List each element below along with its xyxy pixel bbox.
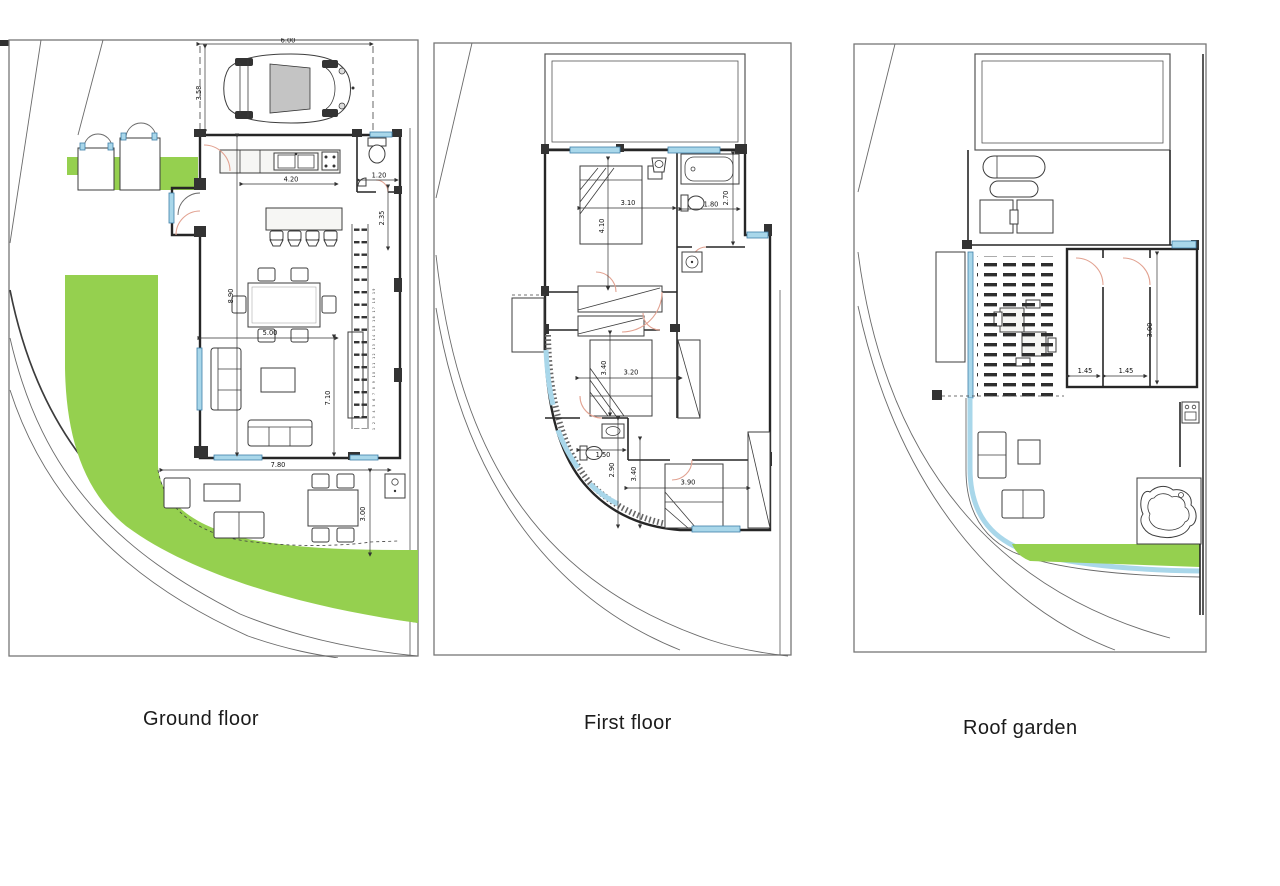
dim-living-width: 5.00: [263, 329, 278, 337]
floor-plan-roof: 1.45 1.45 3.00: [850, 40, 1215, 655]
dim-carport-width: 6.00: [281, 38, 296, 45]
wc-ground: [358, 138, 388, 192]
laundry: [682, 252, 702, 272]
roof-sofa: [978, 432, 1006, 478]
outdoor-sink-icon: [385, 474, 405, 498]
living-room: [211, 332, 363, 446]
roof-sofa-2: [1002, 490, 1044, 518]
dim-store2-width: 1.45: [1119, 367, 1134, 375]
roof-table: [1017, 200, 1053, 233]
dim-bed2-width: 3.20: [624, 369, 639, 377]
dim-terrace-width: 7.80: [271, 461, 286, 469]
store-rooms: 1.45 1.45 3.00: [1067, 241, 1197, 387]
sofa-2: [248, 420, 312, 446]
bathtub-icon: [681, 154, 739, 184]
side-table: [1018, 440, 1040, 464]
void-over-carport: [545, 54, 745, 149]
staircase-ground: 1 2 3 4 5 6 7 8 9 10 11 12 13 14 15 16 1…: [352, 224, 376, 430]
stove-icon: [322, 152, 338, 170]
dim-kitchen-width: 4.20: [284, 176, 299, 184]
corner-basin-icon: [358, 178, 366, 186]
bed-icon: [665, 464, 723, 528]
dim-east-depth: 7.10: [324, 391, 332, 406]
dining-table: [232, 268, 336, 342]
stairwell-first: [578, 286, 662, 336]
dim-bed3-depth: 3.40: [630, 467, 638, 482]
outdoor-armchair: [164, 478, 190, 508]
kitchen-sink-icon: [274, 153, 318, 170]
wardrobe: [748, 432, 770, 528]
dim-wc-depth: 2.35: [378, 211, 386, 226]
windows-first: [546, 147, 768, 532]
car-icon: [224, 54, 355, 123]
stair-step-numbers: 1 2 3 4 5 6 7 8 9 10 11 12 13 14 15 16 1…: [372, 287, 376, 430]
dim-bath-depth: 2.70: [722, 191, 730, 206]
dim-bed1-width: 3.10: [621, 199, 636, 207]
kitchen: [220, 150, 342, 246]
roof-sink-icon: [1182, 402, 1199, 423]
roof-table-link: [1010, 210, 1018, 224]
pergola-louvers: [977, 256, 1053, 398]
dim-hall-depth: 2.90: [608, 463, 616, 478]
toilet-icon: [368, 138, 386, 163]
lawn-strip-roof: [1012, 544, 1200, 567]
carport: [200, 46, 373, 135]
caption-first-floor: First floor: [584, 712, 672, 735]
dim-bed3-width: 3.90: [681, 479, 696, 487]
outdoor-dining-set: [308, 474, 358, 542]
dim-store-depth: 3.00: [1146, 323, 1154, 338]
dim-wc-width: 1.20: [372, 172, 387, 180]
floor-plan-first: 3.10 4.10 1.80 2.70 3.40 3.20 1.50 2.90 …: [430, 40, 795, 658]
outdoor-sofa: [214, 512, 264, 538]
void-over-carport: [975, 54, 1170, 150]
dim-terrace-depth: 3.00: [359, 507, 367, 522]
floor-plan-ground: 1 2 3 4 5 6 7 8 9 10 11 12 13 14 15 16 1…: [8, 38, 420, 658]
house-walls-first: [541, 144, 772, 530]
caption-ground-floor: Ground floor: [143, 708, 259, 731]
bar-stools: [270, 231, 337, 246]
dim-store1-width: 1.45: [1078, 367, 1093, 375]
caption-roof-garden: Roof garden: [963, 717, 1077, 740]
vanity-sink-icon: [652, 158, 666, 172]
dim-living-depth: 8.90: [227, 289, 235, 304]
coffee-table: [261, 368, 295, 392]
upper-roof-terrace: [968, 150, 1197, 245]
toilet-icon: [681, 195, 704, 211]
balcony-planter: [512, 295, 545, 352]
sofa: [211, 348, 241, 410]
dim-wc-width: 1.50: [596, 451, 611, 459]
dim-bath-width: 1.80: [704, 201, 719, 209]
plan-sheet: 1 2 3 4 5 6 7 8 9 10 11 12 13 14 15 16 1…: [0, 0, 1280, 886]
outdoor-coffee-table: [204, 484, 240, 501]
planter-box: [936, 252, 965, 362]
jacuzzi-icon: [1137, 478, 1201, 544]
dim-carport-depth: 3.58: [195, 86, 203, 101]
dim-bed2-depth: 3.40: [600, 361, 608, 376]
kitchen-island: [266, 208, 342, 230]
washing-machine-icon: [682, 252, 702, 272]
wardrobe: [678, 340, 700, 418]
sun-lounger-icon: [990, 181, 1038, 197]
dim-bed1-depth: 4.10: [598, 219, 606, 234]
roof-table: [980, 200, 1013, 233]
sun-lounger-icon: [983, 156, 1045, 178]
lower-roof-terrace: [966, 398, 1201, 615]
sink-icon: [602, 424, 624, 438]
